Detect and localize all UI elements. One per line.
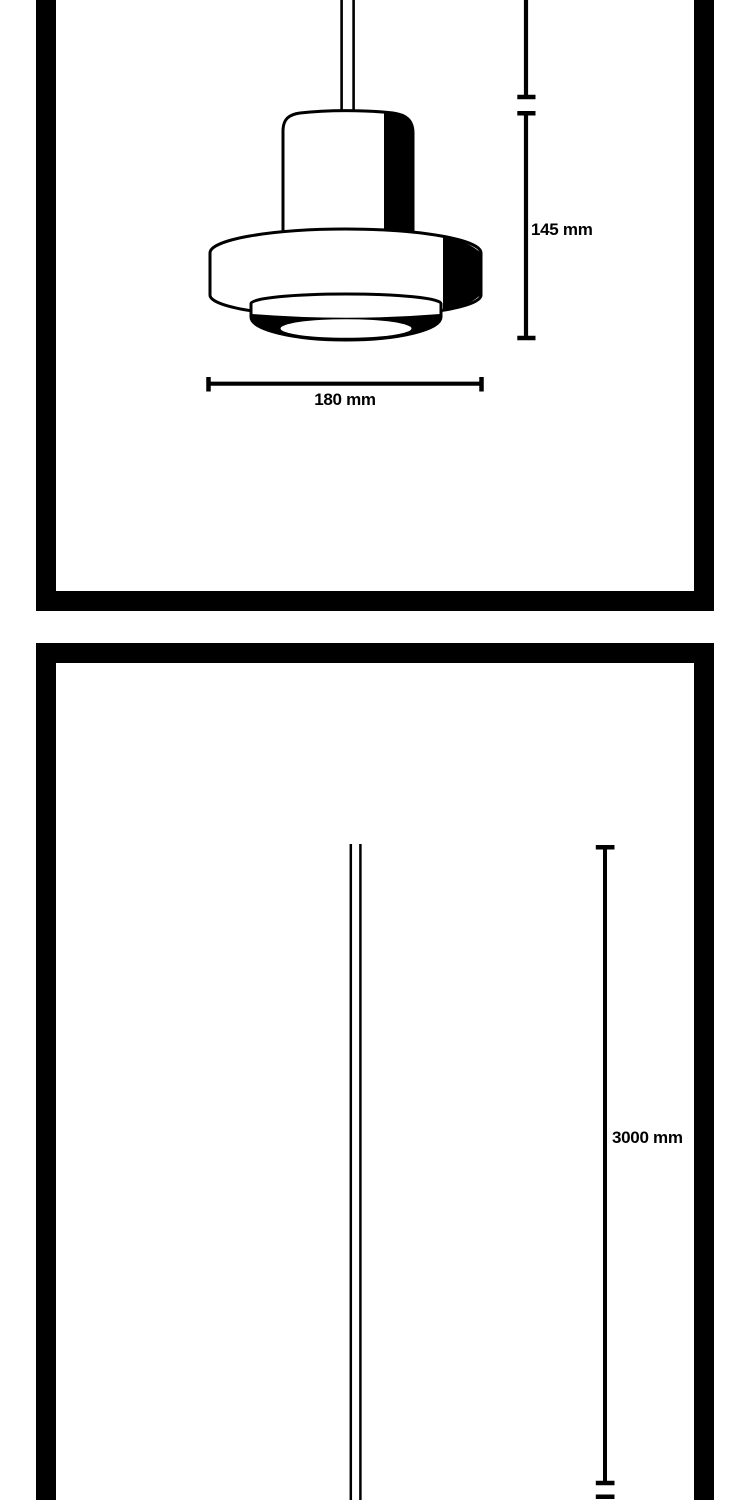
width-dimension-label: 180 mm [314, 391, 376, 408]
dimension-line-suspension-partial [517, 0, 535, 97]
panel-lamp-head-drawing: 145 mm 180 mm [36, 0, 714, 611]
panel-cable-length-drawing: 3000 mm [36, 643, 714, 1500]
cable-length-dimension-label: 3000 mm [612, 1129, 683, 1146]
light-lens [281, 319, 412, 338]
lamp-body [210, 111, 481, 340]
suspension-cable [351, 844, 361, 1500]
pendant-lamp-drawing [56, 0, 694, 591]
suspension-cord [342, 0, 354, 116]
height-dimension-label: 145 mm [531, 221, 593, 238]
cable-drawing [56, 663, 694, 1500]
dimension-line-cable-length [596, 847, 615, 1483]
neck-shadow [384, 113, 413, 237]
page: { "colors": { "ink": "#000000", "paper":… [0, 0, 750, 1500]
